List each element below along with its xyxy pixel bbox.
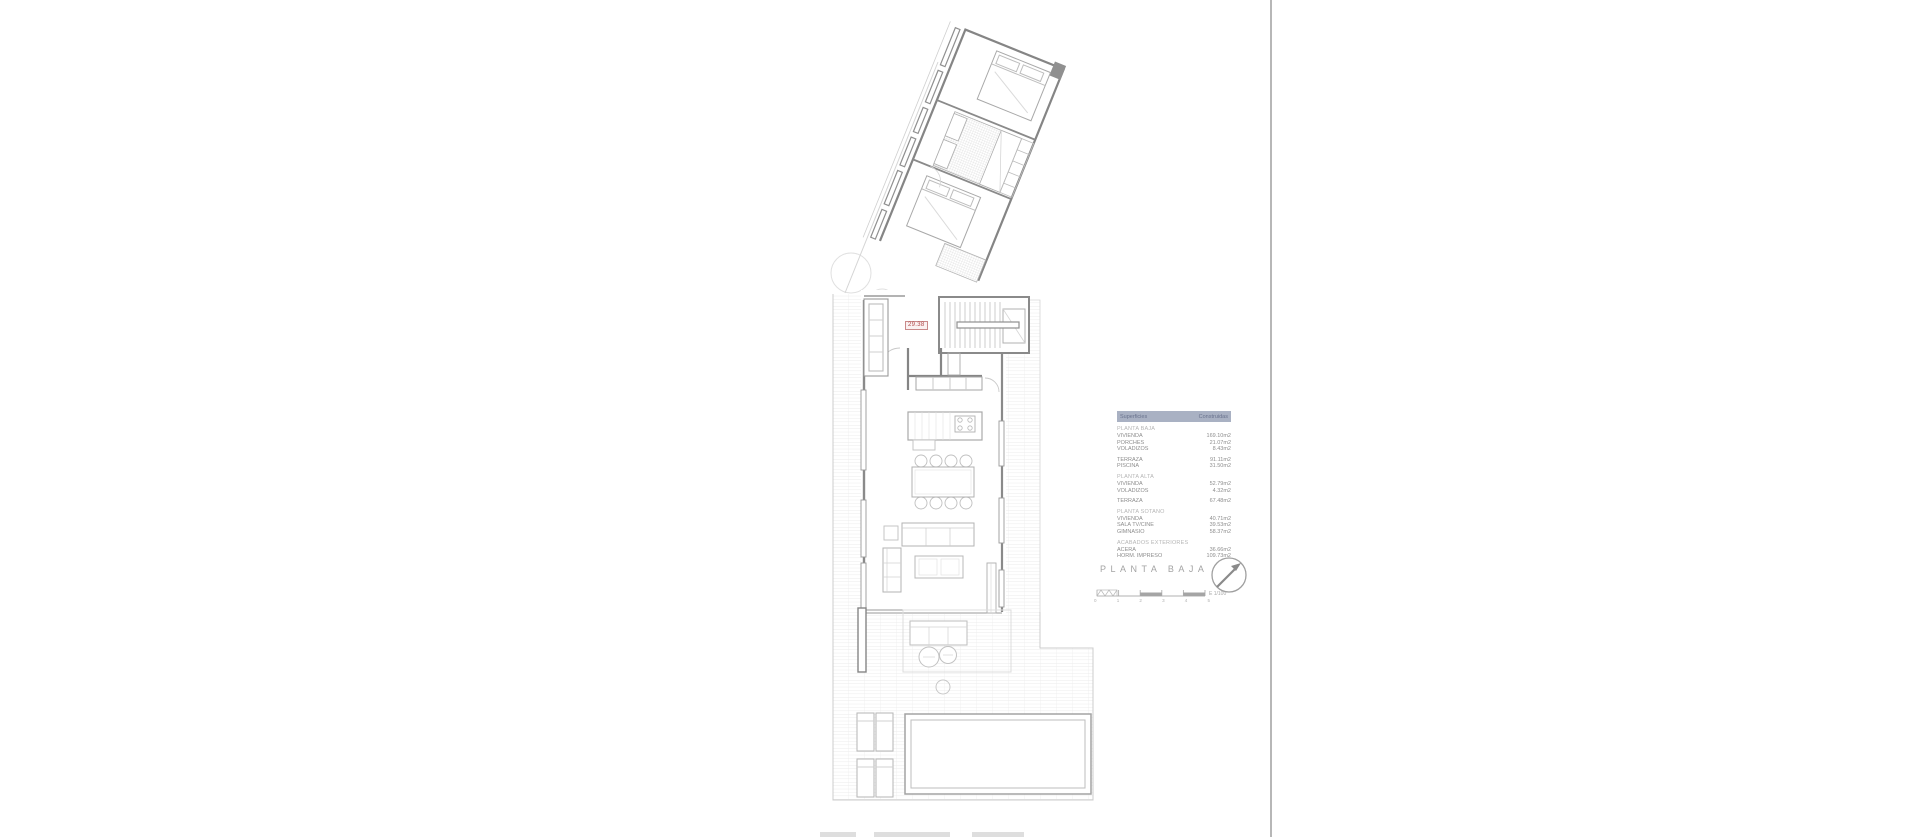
retaining-wall (858, 608, 866, 672)
floor-plan-drawing (0, 0, 1920, 837)
table-row: TERRAZA67.48m2 (1117, 498, 1231, 505)
scale-bar (1097, 590, 1205, 596)
table-row: TERRAZA91.11m2 (1117, 457, 1231, 464)
scale-label: E 1/100 (1209, 591, 1226, 597)
tv-sideboard (987, 563, 996, 613)
table-row: SALA TV/CINE39.53m2 (1117, 522, 1231, 529)
plan-title: PLANTA BAJA (1100, 564, 1218, 574)
bottom-cutoff-bar (972, 832, 1024, 837)
side-table (884, 526, 898, 540)
bedroom-wing (863, 19, 1068, 284)
page-divider (1270, 0, 1272, 837)
table-row: PISCINA31.50m2 (1117, 463, 1231, 470)
section-title: PLANTA SOTANO (1117, 509, 1231, 516)
table-row: VIVIENDA169.10m2 (1117, 433, 1231, 440)
section-title: ACABADOS EXTERIORES (1117, 540, 1231, 547)
surface-table: Superficies Construidas PLANTA BAJA VIVI… (1117, 411, 1231, 560)
section-planta-alta: PLANTA ALTA VIVIENDA52.79m2 VOLADIZOS4.3… (1117, 474, 1231, 494)
table-row: VOLADIZOS8.43m2 (1117, 446, 1231, 453)
bottom-cutoff-bar (820, 832, 856, 837)
section-acabados-exteriores: ACABADOS EXTERIORES ACERA36.66m2 HORM. I… (1117, 540, 1231, 560)
table-row: VOLADIZOS4.32m2 (1117, 488, 1231, 495)
plan-sheet: 29.38 Superficies Construidas PLANTA BAJ… (0, 0, 1920, 837)
bottom-cutoff-bar (874, 832, 950, 837)
header-superficies: Superficies (1120, 414, 1147, 420)
outdoor-sofa (910, 621, 967, 645)
section-planta-sotano: PLANTA SOTANO VIVIENDA40.71m2 SALA TV/CI… (1117, 509, 1231, 536)
kitchen-bench (913, 440, 935, 450)
swimming-pool (905, 714, 1091, 794)
staircase (939, 297, 1029, 353)
scale-tick-labels: 0 1 2 3 4 5 (1094, 598, 1210, 603)
section-title: PLANTA ALTA (1117, 474, 1231, 481)
table-row: ACERA36.66m2 (1117, 547, 1231, 554)
table-row: GIMNASIO58.37m2 (1117, 529, 1231, 536)
surface-table-header: Superficies Construidas (1117, 411, 1231, 422)
table-row: HORM. IMPRESO109.73m2 (1117, 553, 1231, 560)
section-title: PLANTA BAJA (1117, 426, 1231, 433)
table-row: VIVIENDA52.79m2 (1117, 481, 1231, 488)
header-construidas: Construidas (1199, 414, 1228, 420)
table-row: VIVIENDA40.71m2 (1117, 516, 1231, 523)
hall-cabinet (916, 377, 982, 390)
side-sofa (883, 548, 901, 592)
level-label: 29.38 (905, 321, 928, 330)
section-terraza-alta: TERRAZA67.48m2 (1117, 498, 1231, 505)
section-terraza-piscina: TERRAZA91.11m2 PISCINA31.50m2 (1117, 457, 1231, 470)
planter (864, 299, 888, 376)
section-planta-baja: PLANTA BAJA VIVIENDA169.10m2 PORCHES21.0… (1117, 426, 1231, 453)
stair-rail (957, 322, 1019, 328)
table-row: PORCHES21.07m2 (1117, 440, 1231, 447)
